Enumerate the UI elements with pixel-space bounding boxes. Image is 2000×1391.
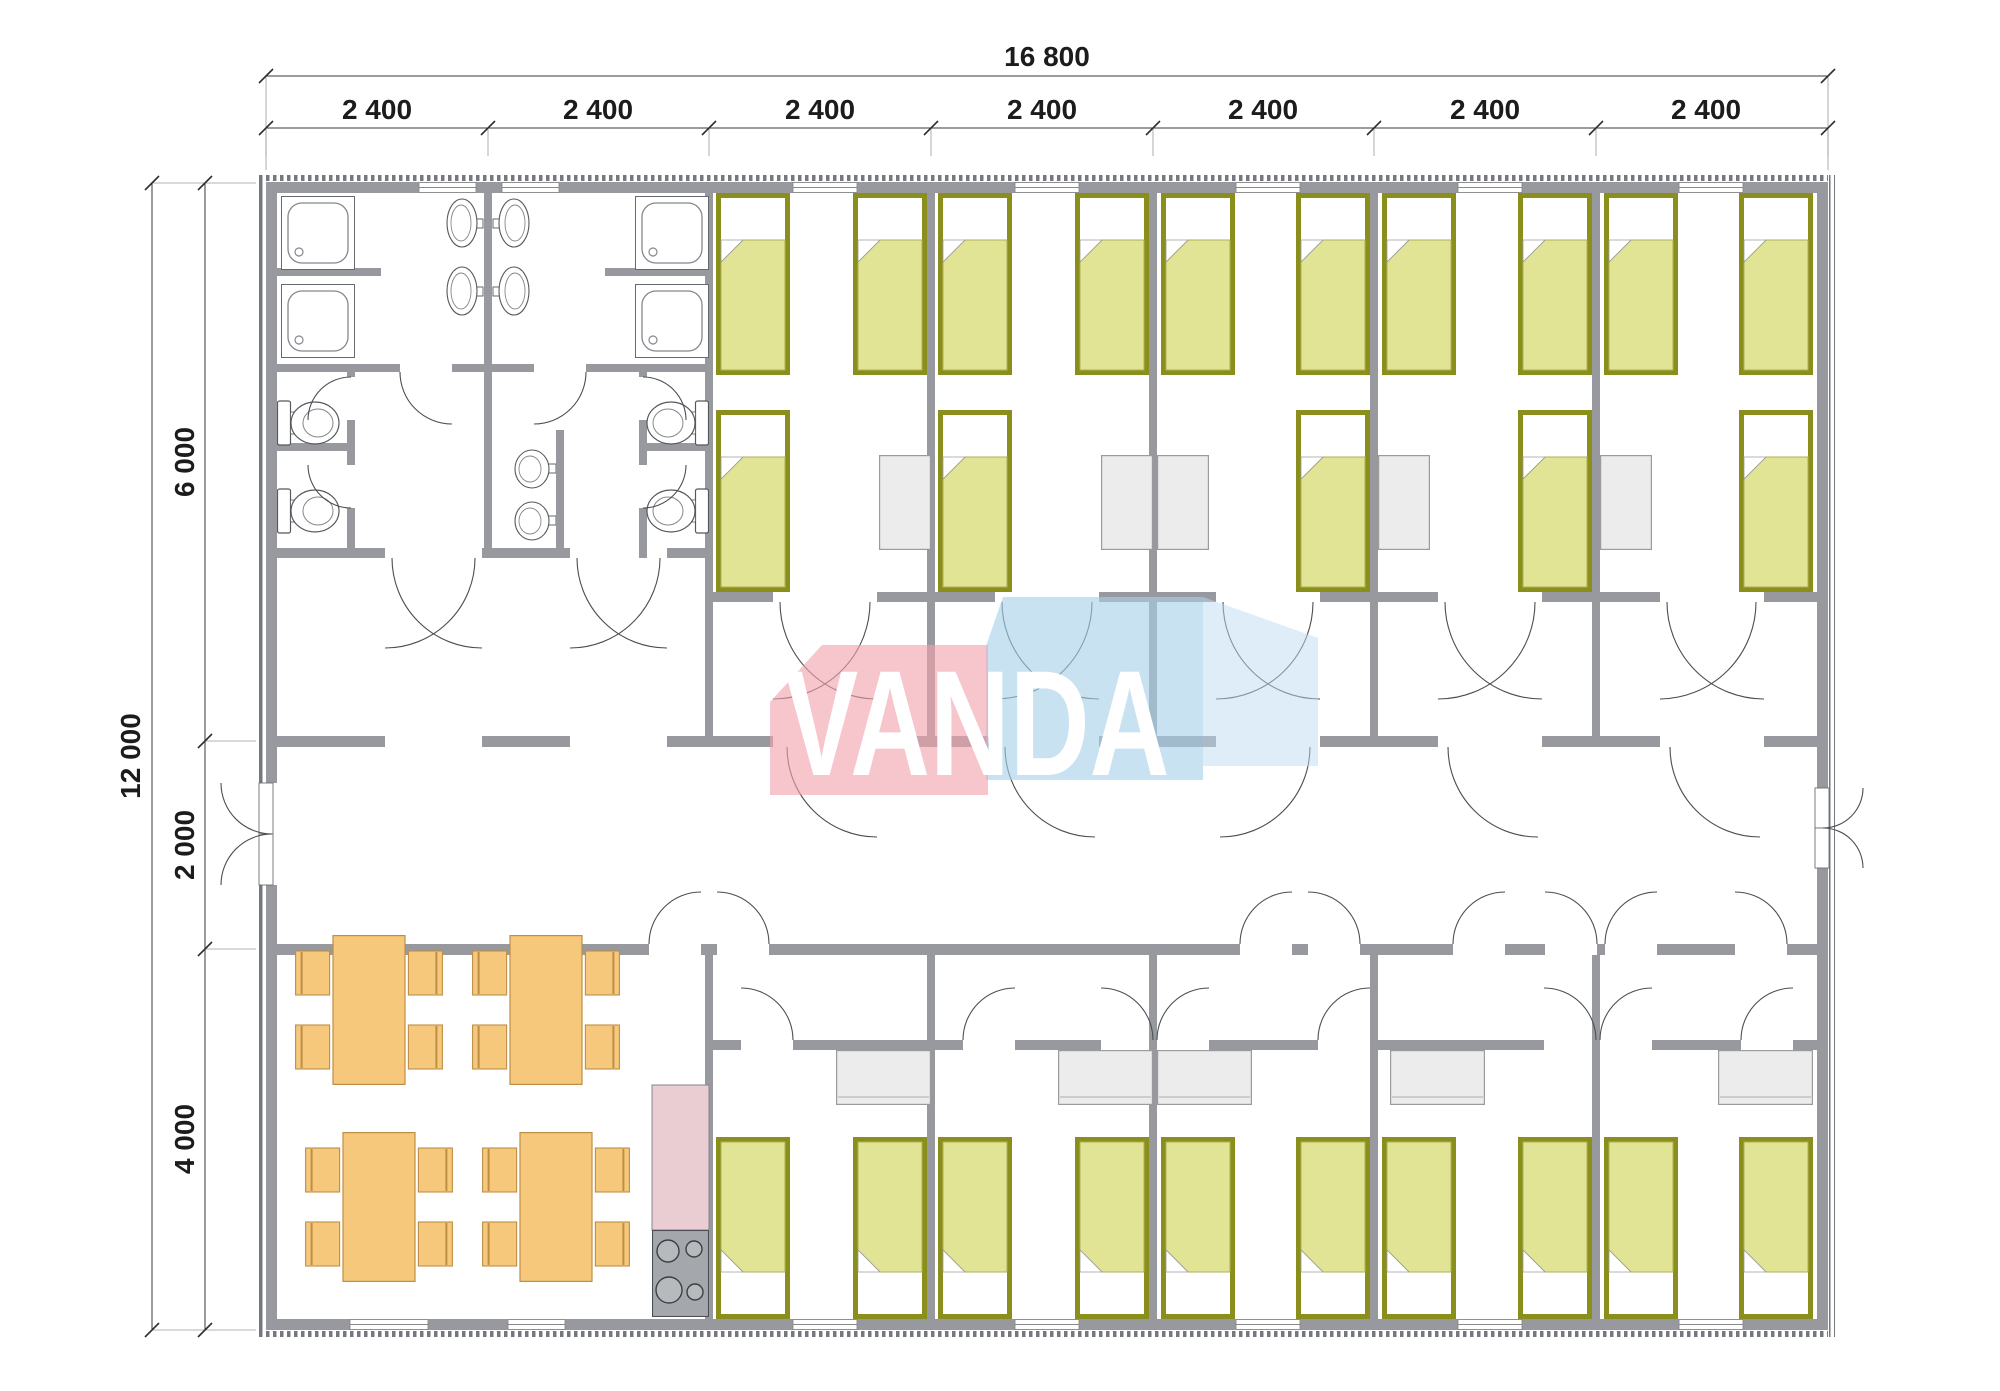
dining-table-icon [296, 936, 443, 1085]
bed-icon [1382, 193, 1456, 375]
dim-zone-corridor: 2 000 [169, 810, 200, 880]
dining-table-icon [483, 1133, 630, 1282]
bed-icon [1604, 193, 1678, 375]
bed-icon [1296, 193, 1370, 375]
shower-icon [636, 197, 709, 270]
shower-icon [282, 285, 355, 358]
bed-icon [1161, 1137, 1235, 1319]
wash-basin-icon [493, 199, 529, 247]
wash-basin-icon [447, 267, 483, 315]
bed-icon [716, 193, 790, 375]
toilet-icon [278, 489, 340, 533]
desk-icon [1719, 1051, 1813, 1105]
dim-zone-bedrooms: 6 000 [169, 427, 200, 497]
dim-module-7: 2 400 [1671, 94, 1741, 125]
wash-basin-icon [447, 199, 483, 247]
logo-wordmark: VANDA [785, 639, 1170, 807]
dim-module-4: 2 400 [1007, 94, 1077, 125]
bed-icon [1518, 1137, 1592, 1319]
desk-icon [1601, 456, 1652, 550]
dim-total-depth: 12 000 [115, 713, 146, 799]
bed-icon [1739, 1137, 1813, 1319]
desk-icon [880, 456, 931, 550]
bed-icon [1161, 193, 1235, 375]
floor-plan-drawing: 16 800 2 400 2 400 2 400 2 400 2 400 2 4… [0, 0, 2000, 1391]
dining-table-icon [473, 936, 620, 1085]
bed-icon [938, 1137, 1012, 1319]
dim-module-2: 2 400 [563, 94, 633, 125]
wash-basin-icon [493, 267, 529, 315]
bed-icon [938, 410, 1012, 592]
desk-icon [1158, 1051, 1252, 1105]
bed-icon [1075, 1137, 1149, 1319]
wash-basin-icon [515, 450, 556, 488]
bed-icon [1604, 1137, 1678, 1319]
desk-icon [1391, 1051, 1485, 1105]
dim-zone-lower: 4 000 [169, 1104, 200, 1174]
dimension-top: 16 800 2 400 2 400 2 400 2 400 2 400 2 4… [259, 41, 1835, 170]
bed-icon [716, 1137, 790, 1319]
toilet-icon [278, 401, 340, 445]
exterior-door-right [1815, 788, 1863, 868]
bed-icon [1739, 410, 1813, 592]
bed-icon [1518, 193, 1592, 375]
toilet-icon [647, 489, 709, 533]
kitchen-counter [652, 1085, 709, 1230]
logo-blue-block-side [1203, 597, 1318, 766]
desk-icon [837, 1051, 931, 1105]
desk-icon [1379, 456, 1430, 550]
bed-icon [938, 193, 1012, 375]
bed-icon [716, 410, 790, 592]
desk-icon [1102, 456, 1153, 550]
exterior-door-left [221, 783, 278, 885]
shower-icon [282, 197, 355, 270]
kitchen [652, 1085, 709, 1317]
bed-icon [853, 193, 927, 375]
dining-area [296, 936, 630, 1282]
dim-module-3: 2 400 [785, 94, 855, 125]
bed-icon [1296, 1137, 1370, 1319]
dim-module-6: 2 400 [1450, 94, 1520, 125]
vanda-logo: VANDA [770, 597, 1318, 807]
shower-icon [636, 285, 709, 358]
wash-basin-icon [515, 502, 556, 540]
desk-icon [1059, 1051, 1153, 1105]
bed-icon [1382, 1137, 1456, 1319]
bed-icon [1739, 193, 1813, 375]
bed-icon [853, 1137, 927, 1319]
bed-icon [1075, 193, 1149, 375]
bed-icon [1296, 410, 1370, 592]
dining-table-icon [306, 1133, 453, 1282]
stove-icon [653, 1231, 709, 1317]
toilet-icon [647, 401, 709, 445]
bed-icon [1518, 410, 1592, 592]
dim-module-5: 2 400 [1228, 94, 1298, 125]
floor-plan-canvas: 16 800 2 400 2 400 2 400 2 400 2 400 2 4… [0, 0, 2000, 1391]
dim-module-1: 2 400 [342, 94, 412, 125]
dim-total-width: 16 800 [1004, 41, 1090, 72]
desk-icon [1158, 456, 1209, 550]
dimension-left: 12 000 6 000 2 000 4 000 [115, 176, 256, 1337]
